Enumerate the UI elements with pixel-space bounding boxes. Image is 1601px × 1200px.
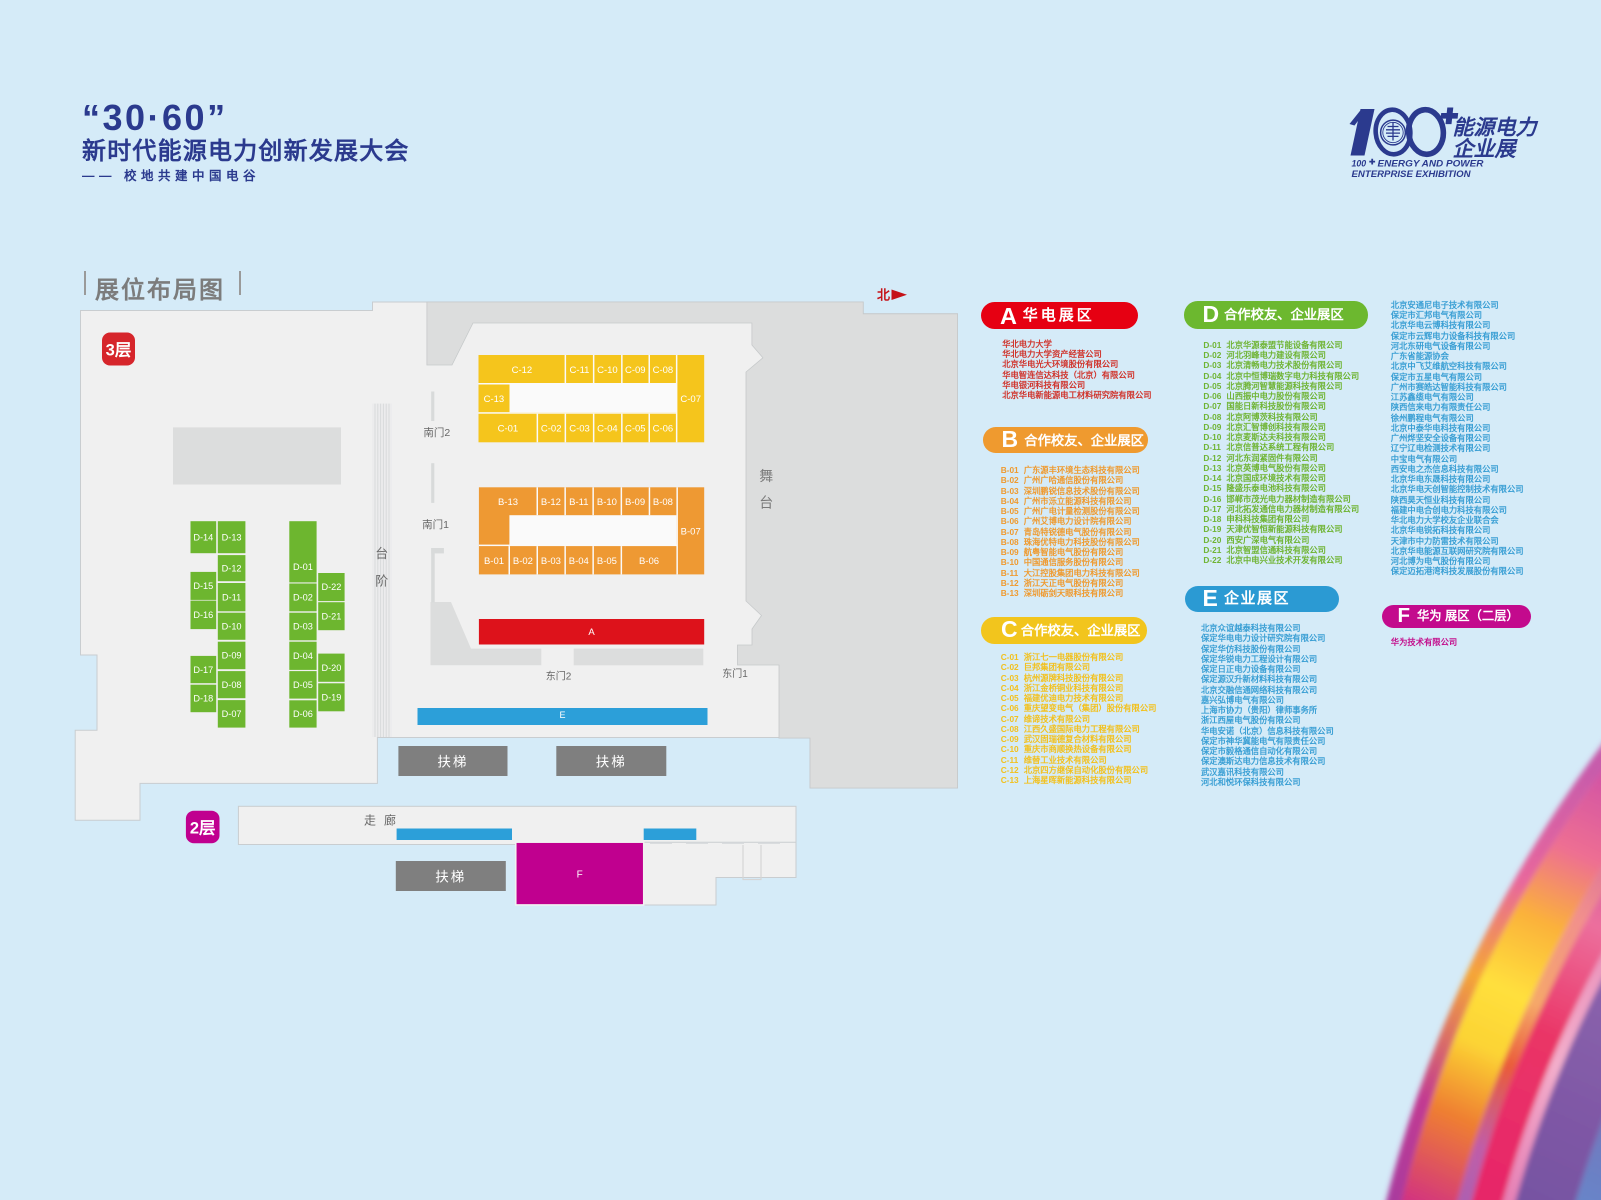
svg-text:D-01: D-01 bbox=[293, 562, 313, 572]
svg-text:C-08: C-08 bbox=[653, 365, 674, 376]
svg-text:B-04: B-04 bbox=[569, 556, 589, 567]
svg-text:D-02: D-02 bbox=[293, 593, 313, 603]
svg-text:D-16: D-16 bbox=[193, 610, 213, 620]
svg-text:北: 北 bbox=[877, 288, 890, 303]
svg-text:企业展: 企业展 bbox=[1453, 137, 1519, 161]
svg-text:D-15: D-15 bbox=[193, 581, 213, 591]
svg-text:D-04: D-04 bbox=[293, 651, 313, 661]
svg-text:B-06: B-06 bbox=[639, 556, 659, 567]
svg-text:D-09: D-09 bbox=[222, 651, 242, 661]
svg-text:南门2: 南门2 bbox=[423, 426, 450, 439]
svg-text:东门1: 东门1 bbox=[722, 667, 748, 680]
svg-text:B-02: B-02 bbox=[513, 556, 533, 567]
svg-text:B-08: B-08 bbox=[653, 497, 673, 508]
svg-text:C-09: C-09 bbox=[625, 365, 646, 376]
svg-text:走廊: 走廊 bbox=[364, 813, 404, 828]
svg-text:B-13: B-13 bbox=[498, 497, 518, 508]
svg-text:C-01: C-01 bbox=[498, 424, 519, 435]
svg-text:D-06: D-06 bbox=[293, 709, 313, 719]
svg-text:D-17: D-17 bbox=[193, 665, 213, 675]
svg-text:B-03: B-03 bbox=[541, 556, 561, 567]
svg-text:D-14: D-14 bbox=[193, 532, 213, 542]
svg-text:D-11: D-11 bbox=[222, 592, 241, 602]
svg-text:能源电力: 能源电力 bbox=[1453, 116, 1539, 140]
svg-text:B-09: B-09 bbox=[625, 497, 645, 508]
svg-text:B-12: B-12 bbox=[541, 497, 561, 508]
svg-text:C-04: C-04 bbox=[597, 424, 618, 435]
svg-text:台: 台 bbox=[375, 546, 388, 561]
svg-text:南门1: 南门1 bbox=[422, 518, 449, 531]
svg-text:E: E bbox=[559, 710, 565, 720]
svg-text:C-13: C-13 bbox=[484, 394, 505, 405]
svg-text:D-19: D-19 bbox=[321, 693, 341, 703]
svg-text:C-11: C-11 bbox=[570, 365, 590, 376]
svg-text:D-13: D-13 bbox=[222, 532, 242, 542]
svg-text:B-01: B-01 bbox=[484, 556, 504, 567]
svg-text:D-22: D-22 bbox=[321, 582, 341, 592]
svg-text:扶梯: 扶梯 bbox=[596, 755, 627, 770]
svg-text:D-05: D-05 bbox=[293, 680, 313, 690]
svg-text:ENERGY AND POWER: ENERGY AND POWER bbox=[1378, 159, 1485, 169]
svg-text:C-02: C-02 bbox=[541, 424, 562, 435]
svg-text:B-10: B-10 bbox=[597, 497, 617, 508]
svg-text:F: F bbox=[577, 870, 583, 881]
svg-text:B-05: B-05 bbox=[597, 556, 617, 567]
svg-text:ENTERPRISE EXHIBITION: ENTERPRISE EXHIBITION bbox=[1352, 169, 1472, 179]
svg-text:3层: 3层 bbox=[106, 341, 132, 360]
svg-text:A: A bbox=[588, 627, 595, 638]
svg-text:D-12: D-12 bbox=[222, 563, 242, 573]
svg-text:东门2: 东门2 bbox=[546, 670, 572, 683]
svg-text:台: 台 bbox=[759, 495, 773, 511]
svg-text:D-03: D-03 bbox=[293, 622, 313, 632]
svg-text:D-10: D-10 bbox=[222, 622, 242, 632]
svg-text:D-20: D-20 bbox=[321, 663, 341, 673]
svg-text:C-05: C-05 bbox=[625, 424, 646, 435]
svg-text:C-07: C-07 bbox=[680, 394, 701, 405]
svg-text:C-12: C-12 bbox=[512, 365, 533, 376]
svg-text:D-21: D-21 bbox=[321, 611, 341, 621]
svg-text:C-10: C-10 bbox=[597, 365, 618, 376]
svg-text:C-03: C-03 bbox=[569, 424, 590, 435]
svg-text:2层: 2层 bbox=[190, 819, 216, 838]
svg-text:扶梯: 扶梯 bbox=[437, 755, 468, 770]
svg-text:C-06: C-06 bbox=[653, 424, 674, 435]
svg-text:D-08: D-08 bbox=[222, 680, 242, 690]
svg-text:阶: 阶 bbox=[375, 574, 388, 589]
svg-text:舞: 舞 bbox=[759, 468, 773, 484]
svg-text:扶梯: 扶梯 bbox=[435, 870, 466, 885]
svg-text:D-07: D-07 bbox=[222, 709, 242, 719]
svg-text:B-07: B-07 bbox=[681, 527, 701, 538]
svg-text:B-11: B-11 bbox=[569, 497, 588, 508]
svg-text:100: 100 bbox=[1352, 159, 1367, 169]
svg-text:D-18: D-18 bbox=[193, 694, 213, 704]
